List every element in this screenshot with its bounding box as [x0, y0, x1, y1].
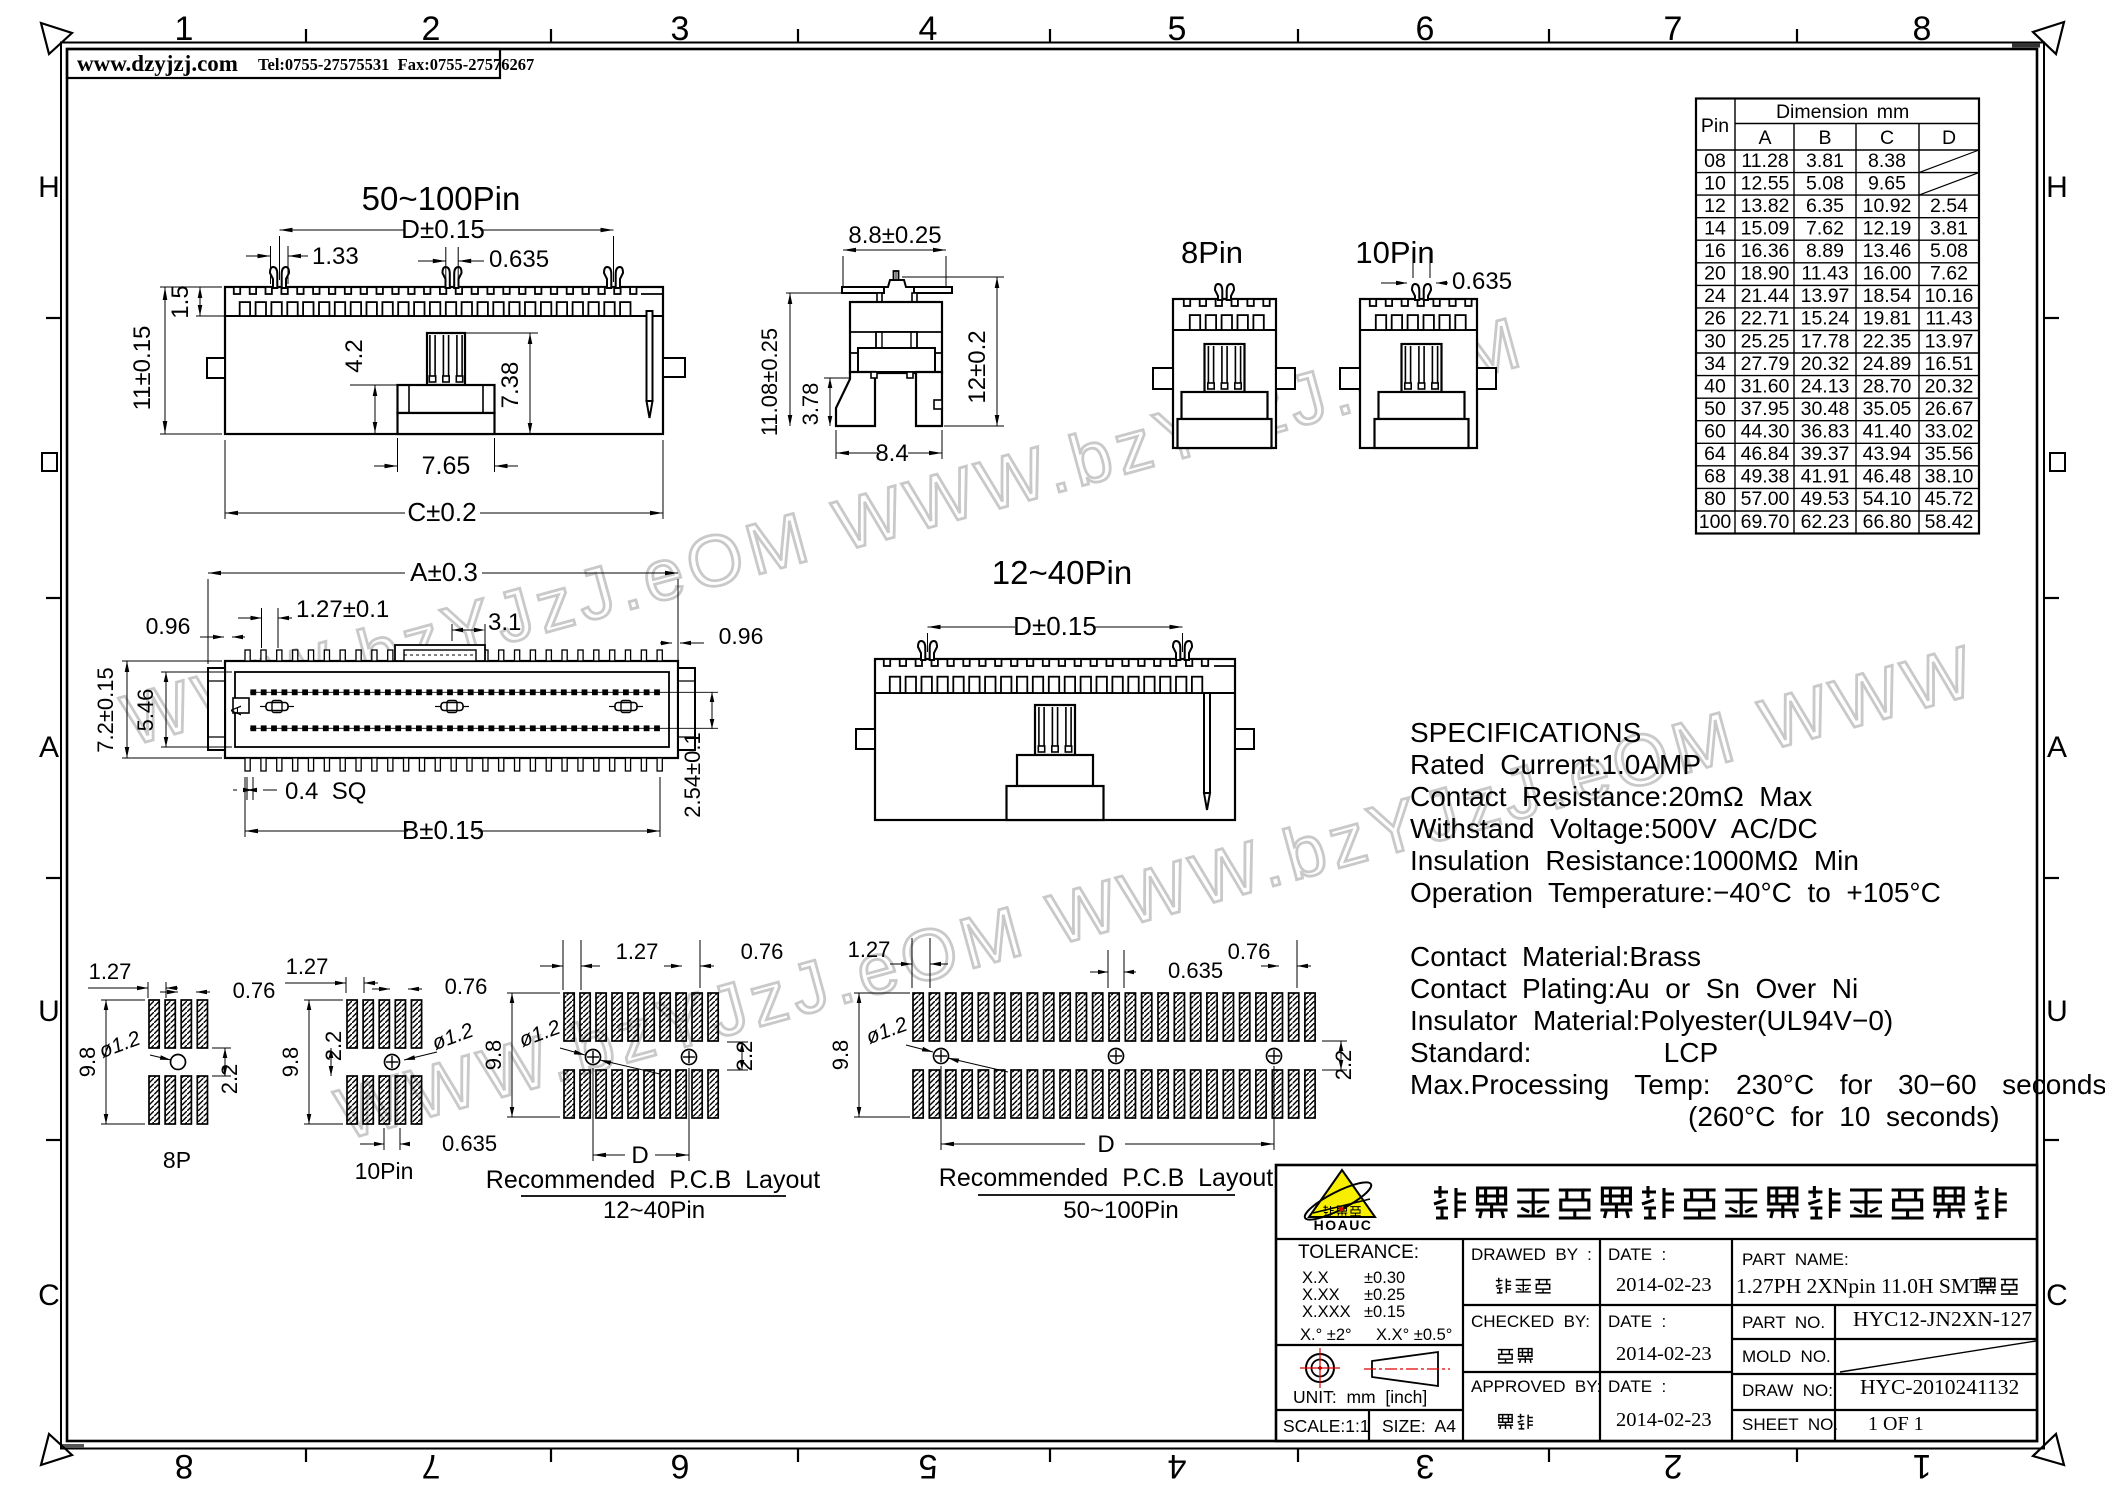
svg-text:A: A — [228, 705, 245, 715]
svg-text:8Pin: 8Pin — [1181, 235, 1243, 270]
svg-text:57.00: 57.00 — [1741, 488, 1790, 510]
svg-text:HOAUC: HOAUC — [1314, 1217, 1373, 1233]
svg-text:7: 7 — [422, 1447, 441, 1485]
svg-text:50: 50 — [1704, 398, 1726, 420]
svg-text:Withstand Voltage:500V AC/DC: Withstand Voltage:500V AC/DC — [1410, 813, 1818, 844]
svg-text:6: 6 — [1416, 10, 1435, 48]
svg-text:14: 14 — [1704, 218, 1726, 240]
svg-text:21.44: 21.44 — [1741, 285, 1790, 307]
svg-text:SPECIFICATIONS: SPECIFICATIONS — [1410, 717, 1641, 748]
svg-text:2.2: 2.2 — [217, 1064, 242, 1095]
svg-text:1 OF 1: 1 OF 1 — [1868, 1413, 1924, 1435]
svg-text:46.84: 46.84 — [1741, 443, 1790, 465]
svg-text:B±0.15: B±0.15 — [402, 815, 484, 845]
svg-text:±0.15: ±0.15 — [1364, 1303, 1405, 1321]
svg-text:DATE :: DATE : — [1608, 1377, 1666, 1396]
svg-text:7.62: 7.62 — [1930, 263, 1968, 285]
svg-text:6: 6 — [671, 1447, 690, 1485]
svg-text:39.37: 39.37 — [1801, 443, 1850, 465]
svg-text:25.25: 25.25 — [1741, 330, 1790, 352]
svg-text:A: A — [2047, 731, 2067, 764]
svg-text:2014-02-23: 2014-02-23 — [1616, 1274, 1712, 1296]
svg-text:Rated Current:1.0AMP: Rated Current:1.0AMP — [1410, 749, 1701, 780]
svg-text:0.76: 0.76 — [445, 974, 488, 999]
svg-text:TOLERANCE:: TOLERANCE: — [1298, 1242, 1419, 1263]
svg-text:40: 40 — [1704, 375, 1726, 397]
svg-text:36.83: 36.83 — [1801, 421, 1850, 443]
svg-text:11.43: 11.43 — [1925, 308, 1972, 330]
svg-text:4.2: 4.2 — [341, 339, 368, 372]
svg-text:Recommended P.C.B Layout: Recommended P.C.B Layout — [939, 1164, 1274, 1192]
svg-text:0.635: 0.635 — [1452, 268, 1512, 295]
svg-text:80: 80 — [1704, 488, 1726, 510]
svg-text:D: D — [631, 1142, 648, 1169]
svg-text:11.28: 11.28 — [1741, 150, 1788, 172]
svg-text:3.81: 3.81 — [1930, 218, 1968, 240]
svg-text:10: 10 — [1704, 172, 1726, 194]
svg-text:7.38: 7.38 — [497, 362, 524, 409]
svg-text:7.62: 7.62 — [1806, 218, 1844, 240]
svg-text:15.09: 15.09 — [1741, 218, 1790, 240]
svg-text:13.82: 13.82 — [1741, 195, 1790, 217]
svg-text:PART NO.: PART NO. — [1742, 1313, 1825, 1332]
svg-text:8P: 8P — [163, 1147, 191, 1173]
svg-text:11±0.15: 11±0.15 — [129, 326, 156, 411]
svg-text:9.8: 9.8 — [481, 1040, 506, 1071]
svg-text:Insulation Resistance:1000MΩ: Insulation Resistance:1000MΩ Min — [1410, 845, 1859, 876]
svg-text:19.81: 19.81 — [1863, 308, 1912, 330]
svg-text:10Pin: 10Pin — [355, 1158, 414, 1184]
svg-text:www.dzyjzj.com: www.dzyjzj.com — [77, 51, 238, 76]
svg-text:A: A — [1758, 127, 1771, 149]
svg-text:62.23: 62.23 — [1801, 511, 1850, 533]
svg-text:SHEET NO.: SHEET NO. — [1742, 1415, 1838, 1434]
svg-text:A±0.3: A±0.3 — [410, 557, 478, 587]
svg-text:X.XXX: X.XXX — [1302, 1303, 1351, 1321]
svg-text:41.91: 41.91 — [1801, 466, 1850, 488]
svg-text:0.635: 0.635 — [442, 1131, 497, 1156]
svg-text:24.13: 24.13 — [1801, 375, 1850, 397]
svg-text:3.78: 3.78 — [798, 383, 823, 426]
svg-text:Tel:0755-27575531 Fax:0755-27: Tel:0755-27575531 Fax:0755-27576267 — [258, 55, 534, 74]
svg-text:2.2: 2.2 — [321, 1031, 346, 1062]
svg-text:12: 12 — [1704, 195, 1726, 217]
svg-text:13.46: 13.46 — [1863, 240, 1912, 262]
svg-text:37.95: 37.95 — [1741, 398, 1790, 420]
svg-text:43.94: 43.94 — [1863, 443, 1912, 465]
svg-text:30: 30 — [1704, 330, 1726, 352]
svg-text:9.8: 9.8 — [828, 1040, 853, 1071]
svg-text:(260°C for 10 seconds): (260°C for 10 seconds) — [1688, 1101, 2000, 1132]
svg-text:8: 8 — [1913, 10, 1932, 48]
svg-text:22.35: 22.35 — [1863, 330, 1912, 352]
svg-text:Contact Plating:Au or Sn O: Contact Plating:Au or Sn Over Ni — [1410, 973, 1858, 1004]
svg-text:D±0.15: D±0.15 — [1013, 611, 1097, 641]
svg-text:5.46: 5.46 — [133, 689, 158, 732]
svg-text:Standard: LCP: Standard: LCP — [1410, 1037, 1718, 1068]
svg-text:10Pin: 10Pin — [1355, 235, 1434, 270]
svg-text:0.76: 0.76 — [233, 978, 276, 1003]
svg-text:X.° ±2°: X.° ±2° — [1300, 1326, 1352, 1344]
svg-text:0.4 SQ: 0.4 SQ — [285, 778, 366, 805]
svg-text:12±0.2: 12±0.2 — [964, 330, 991, 403]
svg-text:CHECKED BY:: CHECKED BY: — [1471, 1312, 1590, 1331]
svg-text:Max.Processing Temp: 230°C: Max.Processing Temp: 230°C for 30−60 sec… — [1410, 1069, 2105, 1100]
svg-text:16.36: 16.36 — [1741, 240, 1790, 262]
svg-text:mm: mm — [1877, 101, 1910, 123]
svg-text:1.33: 1.33 — [312, 243, 359, 270]
svg-text:X.X° ±0.5°: X.X° ±0.5° — [1376, 1326, 1452, 1344]
svg-text:18.90: 18.90 — [1741, 263, 1790, 285]
svg-text:10.16: 10.16 — [1925, 285, 1974, 307]
svg-text:60: 60 — [1704, 421, 1726, 443]
svg-text:28.70: 28.70 — [1863, 375, 1912, 397]
svg-text:0.635: 0.635 — [1168, 958, 1223, 983]
svg-text:8: 8 — [175, 1447, 194, 1485]
svg-text:35.56: 35.56 — [1925, 443, 1974, 465]
svg-text:35.05: 35.05 — [1863, 398, 1912, 420]
svg-text:100: 100 — [1699, 511, 1732, 533]
svg-text:12.55: 12.55 — [1741, 172, 1790, 194]
svg-text:16.51: 16.51 — [1925, 353, 1974, 375]
svg-text:0.96: 0.96 — [719, 623, 764, 649]
svg-text:5: 5 — [1168, 10, 1187, 48]
svg-text:0.96: 0.96 — [146, 613, 191, 639]
svg-text:4: 4 — [919, 10, 938, 48]
svg-text:1.27PH 2XNpin 11.0H SMT: 1.27PH 2XNpin 11.0H SMT — [1736, 1274, 1983, 1298]
svg-text:20.32: 20.32 — [1801, 353, 1850, 375]
svg-text:2014-02-23: 2014-02-23 — [1616, 1343, 1712, 1365]
svg-text:H: H — [38, 171, 60, 204]
svg-text:C: C — [1880, 127, 1894, 149]
svg-text:8.89: 8.89 — [1806, 240, 1844, 262]
svg-text:C±0.2: C±0.2 — [407, 497, 476, 527]
svg-text:9.8: 9.8 — [278, 1047, 303, 1078]
svg-text:Dimension: Dimension — [1776, 101, 1868, 123]
svg-text:24.89: 24.89 — [1863, 353, 1912, 375]
svg-text:X.X: X.X — [1302, 1269, 1329, 1287]
svg-text:64: 64 — [1704, 443, 1726, 465]
svg-text:44.30: 44.30 — [1741, 421, 1790, 443]
svg-text:5: 5 — [919, 1447, 938, 1485]
svg-text:13.97: 13.97 — [1925, 330, 1974, 352]
svg-text:5.08: 5.08 — [1930, 240, 1968, 262]
svg-text:2.2: 2.2 — [1331, 1050, 1356, 1081]
svg-text:SCALE:1:1: SCALE:1:1 — [1283, 1416, 1370, 1436]
svg-text:11.43: 11.43 — [1801, 263, 1848, 285]
svg-text:26: 26 — [1704, 308, 1726, 330]
svg-text:66.80: 66.80 — [1863, 511, 1912, 533]
svg-text:15.24: 15.24 — [1801, 308, 1850, 330]
svg-text:2: 2 — [422, 10, 441, 48]
svg-text:45.72: 45.72 — [1925, 488, 1974, 510]
svg-text:10.92: 10.92 — [1863, 195, 1912, 217]
svg-text:1: 1 — [1913, 1447, 1932, 1485]
svg-text:2.54: 2.54 — [1930, 195, 1968, 217]
svg-text:DRAW NO:: DRAW NO: — [1742, 1381, 1833, 1400]
svg-text:8.4: 8.4 — [875, 440, 908, 467]
svg-text:7.2±0.15: 7.2±0.15 — [93, 667, 118, 752]
svg-text:±0.30: ±0.30 — [1364, 1269, 1405, 1287]
svg-text:69.70: 69.70 — [1741, 511, 1790, 533]
svg-text:12~40Pin: 12~40Pin — [992, 554, 1132, 591]
svg-text:58.42: 58.42 — [1925, 511, 1974, 533]
svg-text:2.2: 2.2 — [732, 1041, 757, 1072]
svg-text:1.27±0.1: 1.27±0.1 — [296, 596, 389, 623]
svg-text:HYC12-JN2XN-127: HYC12-JN2XN-127 — [1853, 1307, 2032, 1331]
svg-text:1.27: 1.27 — [286, 954, 329, 979]
svg-text:MOLD NO.: MOLD NO. — [1742, 1347, 1831, 1366]
svg-text:16: 16 — [1704, 240, 1726, 262]
svg-text:17.78: 17.78 — [1801, 330, 1850, 352]
svg-text:U: U — [2046, 995, 2068, 1028]
svg-text:U: U — [38, 995, 60, 1028]
svg-text:DATE :: DATE : — [1608, 1312, 1666, 1331]
svg-text:49.53: 49.53 — [1801, 488, 1850, 510]
svg-text:1.27: 1.27 — [616, 939, 659, 964]
svg-text:±0.25: ±0.25 — [1364, 1286, 1405, 1304]
svg-text:Contact Resistance:20mΩ Max: Contact Resistance:20mΩ Max — [1410, 781, 1812, 812]
svg-text:X.XX: X.XX — [1302, 1286, 1340, 1304]
svg-text:HYC-2010241132: HYC-2010241132 — [1860, 1375, 2019, 1399]
svg-text:22.71: 22.71 — [1741, 308, 1790, 330]
svg-text:9.8: 9.8 — [75, 1047, 100, 1078]
svg-text:PART NAME:: PART NAME: — [1742, 1250, 1849, 1269]
svg-text:C: C — [38, 1279, 60, 1312]
svg-text:4: 4 — [1168, 1447, 1187, 1485]
svg-text:13.97: 13.97 — [1801, 285, 1850, 307]
svg-text:B: B — [1818, 127, 1831, 149]
svg-text:7.65: 7.65 — [422, 452, 471, 480]
svg-text:SIZE: A4: SIZE: A4 — [1382, 1416, 1456, 1436]
svg-text:3: 3 — [1416, 1447, 1435, 1485]
svg-text:2.54±0.1: 2.54±0.1 — [680, 732, 705, 817]
svg-text:1.27: 1.27 — [89, 959, 132, 984]
svg-text:20: 20 — [1704, 263, 1726, 285]
svg-text:34: 34 — [1704, 353, 1726, 375]
svg-text:D: D — [1097, 1131, 1114, 1158]
svg-text:54.10: 54.10 — [1863, 488, 1912, 510]
svg-text:31.60: 31.60 — [1741, 375, 1790, 397]
svg-text:33.02: 33.02 — [1925, 421, 1974, 443]
svg-text:5.08: 5.08 — [1806, 172, 1844, 194]
svg-text:D±0.15: D±0.15 — [401, 214, 485, 244]
svg-text:UNIT: mm [inch]: UNIT: mm [inch] — [1293, 1387, 1427, 1407]
svg-text:1.27: 1.27 — [848, 937, 891, 962]
svg-text:3: 3 — [671, 10, 690, 48]
svg-text:50~100Pin: 50~100Pin — [362, 180, 521, 217]
svg-text:Insulator Material:Polyester(: Insulator Material:Polyester(UL94V−0) — [1410, 1005, 1893, 1036]
svg-text:68: 68 — [1704, 466, 1726, 488]
svg-text:9.65: 9.65 — [1868, 172, 1906, 194]
svg-text:0.635: 0.635 — [489, 246, 549, 273]
svg-text:DATE :: DATE : — [1608, 1245, 1666, 1264]
svg-text:D: D — [1942, 127, 1956, 149]
svg-text:41.40: 41.40 — [1863, 421, 1912, 443]
svg-text:26.67: 26.67 — [1925, 398, 1974, 420]
svg-text:H: H — [2046, 171, 2068, 204]
svg-text:1: 1 — [175, 10, 194, 48]
svg-text:49.38: 49.38 — [1741, 466, 1790, 488]
svg-text:DRAWED BY :: DRAWED BY : — [1471, 1245, 1592, 1264]
svg-text:24: 24 — [1704, 285, 1726, 307]
svg-text:08: 08 — [1704, 150, 1726, 172]
svg-text:18.54: 18.54 — [1863, 285, 1912, 307]
svg-text:7: 7 — [1664, 10, 1683, 48]
svg-text:C: C — [2046, 1279, 2068, 1312]
svg-text:16.00: 16.00 — [1863, 263, 1912, 285]
svg-text:27.79: 27.79 — [1741, 353, 1790, 375]
svg-text:0.76: 0.76 — [741, 939, 784, 964]
svg-text:30.48: 30.48 — [1801, 398, 1850, 420]
svg-text:0.76: 0.76 — [1228, 939, 1271, 964]
svg-text:20.32: 20.32 — [1925, 375, 1974, 397]
svg-text:2: 2 — [1664, 1447, 1683, 1485]
svg-text:12.19: 12.19 — [1863, 218, 1912, 240]
svg-text:Pin: Pin — [1701, 115, 1729, 137]
svg-text:Contact Material:Brass: Contact Material:Brass — [1410, 941, 1701, 972]
svg-text:Recommended P.C.B Layout: Recommended P.C.B Layout — [486, 1166, 821, 1194]
svg-text:3.1: 3.1 — [488, 609, 521, 636]
svg-text:A: A — [39, 731, 59, 764]
svg-text:6.35: 6.35 — [1806, 195, 1844, 217]
svg-text:38.10: 38.10 — [1925, 466, 1974, 488]
svg-text:46.48: 46.48 — [1863, 466, 1912, 488]
svg-text:Operation Temperature:−40°C: Operation Temperature:−40°C to +105°C — [1410, 877, 1941, 908]
svg-text:3.81: 3.81 — [1806, 150, 1844, 172]
svg-text:8.38: 8.38 — [1868, 150, 1906, 172]
svg-text:8.8±0.25: 8.8±0.25 — [848, 222, 941, 249]
svg-text:11.08±0.25: 11.08±0.25 — [757, 328, 782, 436]
svg-text:12~40Pin: 12~40Pin — [603, 1197, 705, 1224]
svg-text:50~100Pin: 50~100Pin — [1063, 1197, 1178, 1224]
svg-text:1.5: 1.5 — [167, 285, 194, 318]
svg-text:APPROVED BY:: APPROVED BY: — [1471, 1377, 1601, 1396]
svg-text:2014-02-23: 2014-02-23 — [1616, 1409, 1712, 1431]
